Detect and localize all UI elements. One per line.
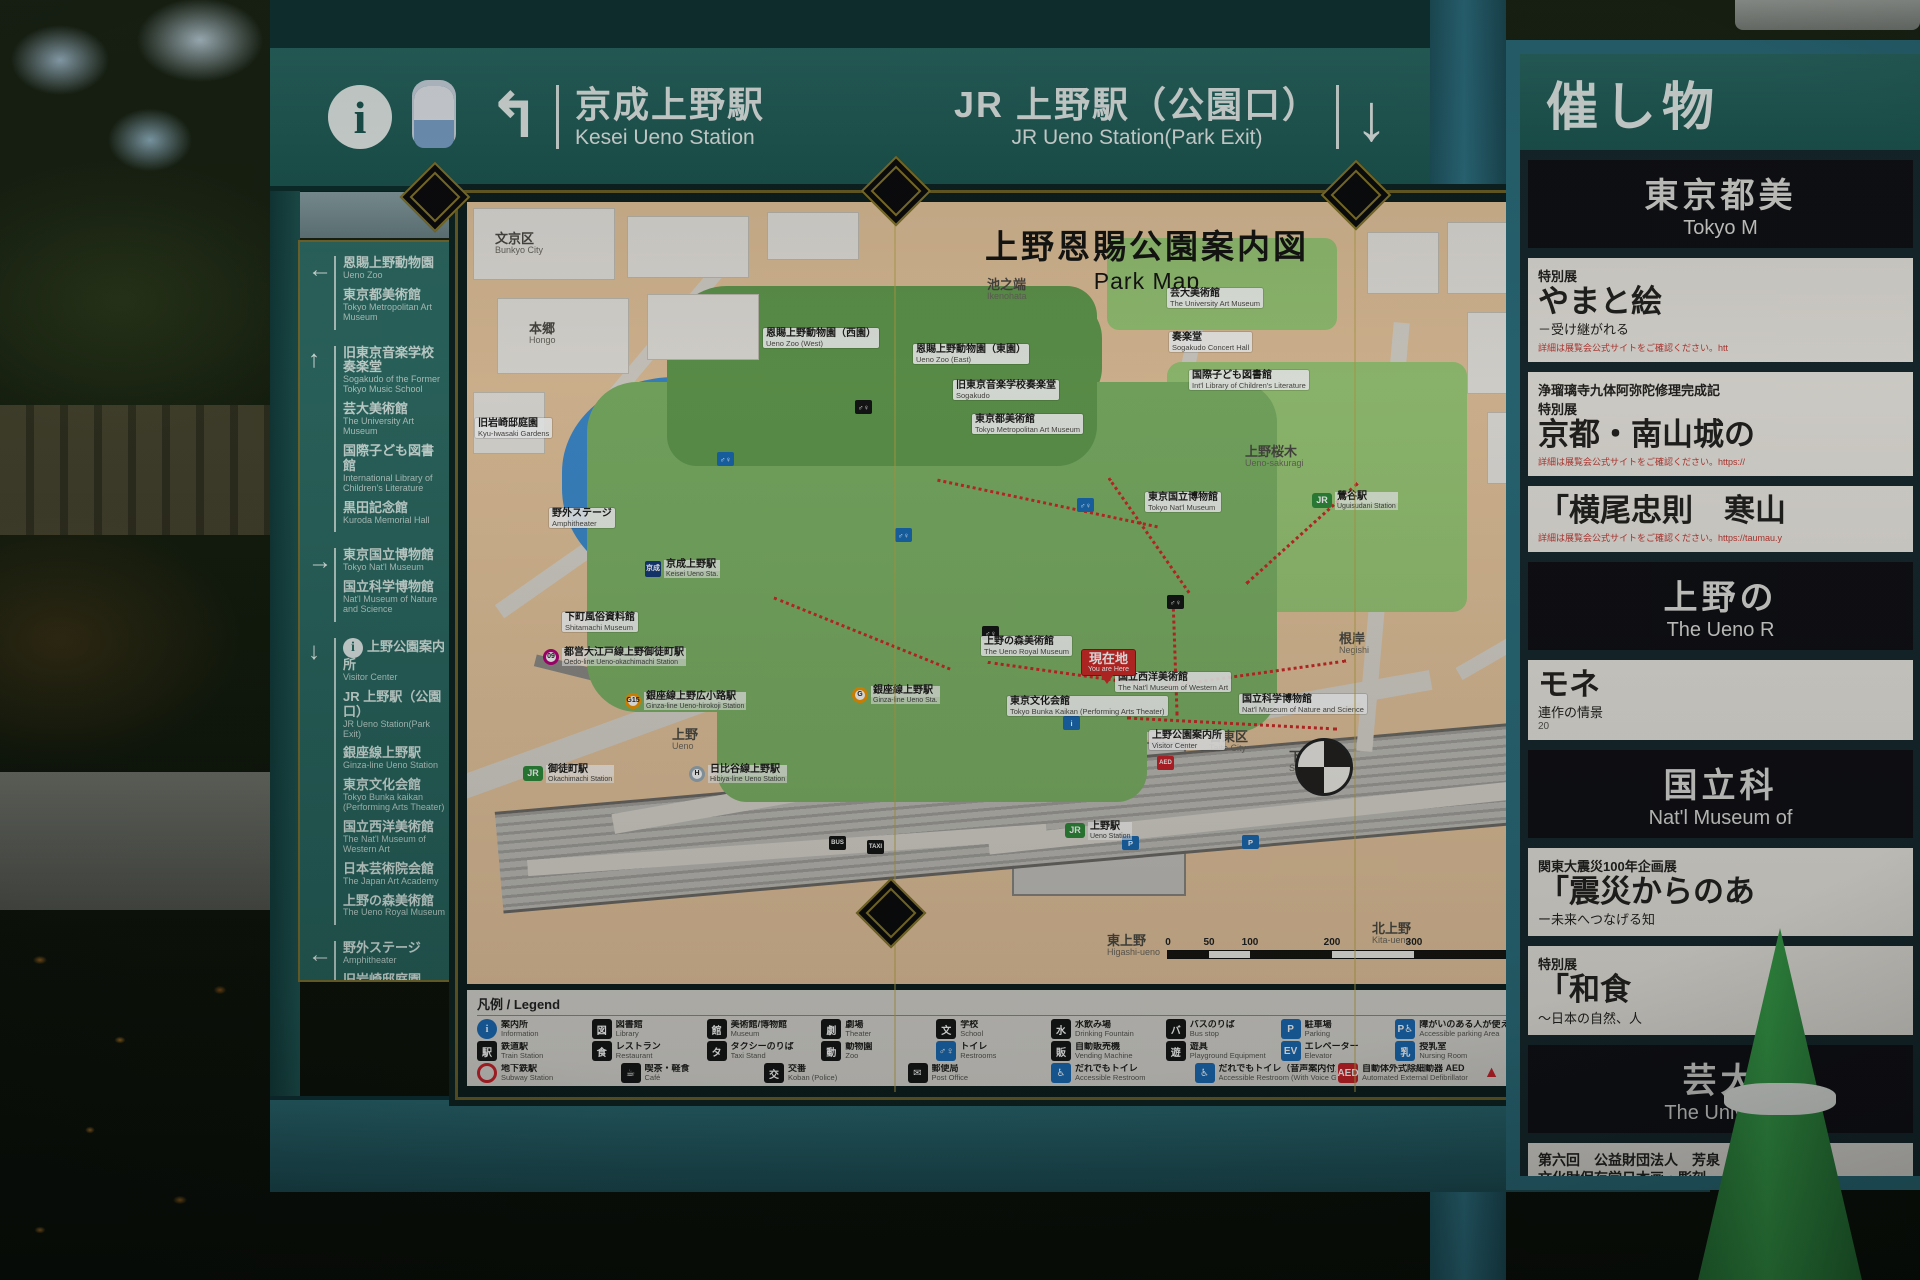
event-poster: 「横尾忠則 寒山詳細は展覧会公式サイトをご確認ください。https://taum… [1528, 486, 1913, 552]
legend-item-text: 遊具Playground Equipment [1190, 1042, 1266, 1060]
caf-icon: ☕ [621, 1063, 641, 1083]
legend-item-jp: バスのりば [1190, 1020, 1235, 1030]
sidebar-item: 旧東京音楽学校奏楽堂Sogakudo of the Former Tokyo M… [343, 346, 446, 396]
place-label-jp: 恩賜上野動物園（東園） [916, 345, 1026, 356]
legend-item: 駅鉄道駅Train Station [477, 1041, 590, 1061]
sidebar-item-jp: 国際子ども図書館 [343, 444, 446, 474]
header-right-destination: JR 上野駅（公園口） JR Ueno Station(Park Exit) [954, 84, 1320, 149]
kesei-ueno-en: Kesei Ueno Station [575, 126, 765, 150]
station-label-en: Okachimachi Station [546, 776, 614, 783]
poster-title-jp: 国立科 [1538, 758, 1903, 807]
station-label-en: Ginza-line Ueno Sta. [871, 697, 940, 704]
legend-item-jp: 学校 [960, 1020, 983, 1030]
scale-tick: 0 [1165, 937, 1171, 948]
legend-item-text: 地下鉄駅Subway Station [501, 1064, 553, 1082]
legend-item-text: エレベーターElevator [1305, 1042, 1359, 1060]
legend-item-jp: 交番 [788, 1064, 837, 1074]
poster-subtitle: ー未来へつなげる知 [1538, 909, 1903, 928]
legend-item-jp: 遊具 [1190, 1042, 1266, 1052]
sidebar-item-en: Amphitheater [343, 956, 446, 966]
station-label-en: Hibiya-line Ueno Station [708, 776, 787, 783]
legend-item-jp: トイレ [960, 1042, 996, 1052]
station-label: H日比谷線上野駅Hibiya-line Ueno Station [689, 765, 787, 783]
legend-title: 凡例 / Legend [477, 994, 1623, 1016]
school-icon: 文 [936, 1019, 956, 1039]
place-label-en: The Nat'l Museum of Western Art [1118, 684, 1228, 692]
legend-item-jp: 動物園 [845, 1042, 872, 1052]
area-label-jp: 上野 [672, 728, 698, 742]
legend-item-en: Automated External Defibrillator [1362, 1074, 1468, 1082]
scale-segment [1332, 951, 1414, 958]
legend-item-jp: レストラン [616, 1042, 661, 1052]
blk-shape [767, 212, 859, 260]
information-icon: i [328, 85, 392, 149]
place-label-en: Kyu-Iwasaki Gardens [478, 430, 549, 438]
station-label-text: 日比谷線上野駅Hibiya-line Ueno Station [708, 765, 787, 783]
poster-title-jp: やまと絵 [1538, 285, 1903, 319]
sidebar-item: 恩賜上野動物園Ueno Zoo [343, 256, 446, 281]
legend-item: ♿だれでもトイレAccessible Restroom [1051, 1063, 1193, 1083]
place-label-jp: 旧岩崎邸庭園 [478, 419, 549, 430]
place-label-jp: 旧東京音楽学校奏楽堂 [956, 381, 1056, 392]
legend-item: 動動物園Zoo [821, 1041, 934, 1061]
area-label-en: Bunkyo City [495, 246, 543, 255]
accessible-restroom-with-voice-guidance-icon: ♿ [1195, 1063, 1215, 1083]
station-label-en: Oedo-line Ueno-okachimachi Station [562, 659, 686, 666]
station-label-jp: 上野駅 [1088, 822, 1132, 833]
legend-item-text: 鉄道駅Train Station [501, 1042, 543, 1060]
sidebar-item: 野外ステージAmphitheater [343, 941, 446, 966]
photo-canvas: i ↰ 京成上野駅 Kesei Ueno Station JR 上野駅（公園口）… [0, 0, 1920, 1280]
area-label: 上野桜木Ueno-sakuragi [1245, 445, 1304, 468]
info-icon: i [343, 638, 363, 658]
park-map: 上野恩賜公園案内図 Park Map ♂♀♂♀♂♀♂♀PPBUSiAED♂♀♂♀… [467, 202, 1633, 984]
subway-station-icon [477, 1063, 497, 1083]
scale-tick: 50 [1203, 937, 1214, 948]
sidebar-item: 上野の森美術館The Ueno Royal Museum [343, 894, 446, 919]
theater-icon: 劇 [821, 1019, 841, 1039]
place-label-en: Tokyo Nat'l Museum [1148, 504, 1218, 512]
legend-item-jp: だれでもトイレ [1075, 1064, 1145, 1074]
sidebar-item: 黒田記念館Kuroda Memorial Hall [343, 501, 446, 526]
koban-police-icon: 交 [764, 1063, 784, 1083]
station-label-text: 上野駅Ueno Station [1088, 822, 1132, 840]
place-label-jp: 恩賜上野動物園（西園） [766, 329, 876, 340]
poster-tag: 特別展 [1538, 266, 1903, 285]
subway-line-badge: H [689, 766, 705, 782]
sidebar-item-jp: 恩賜上野動物園 [343, 256, 446, 271]
sidebar-item-jp: 芸大美術館 [343, 402, 446, 417]
legend-row: i案内所Information図図書館Library館美術館/博物館Museum… [477, 1019, 1623, 1039]
legend-item-text: 喫茶・軽食Café [645, 1064, 690, 1082]
sidebar-item-jp: 旧岩崎邸庭園 [343, 973, 446, 982]
legend-item: P♿障がいのある人が使える駐車場Accessible parking Area [1395, 1019, 1508, 1039]
legend-item-text: 図書館Library [616, 1020, 643, 1038]
area-label: 文京区Bunkyo City [495, 232, 543, 255]
you-are-here-en: You are Here [1088, 666, 1129, 673]
legend-item-jp: だれでもトイレ（音声案内付） [1219, 1064, 1337, 1074]
place-label-en: Int'l Library of Children's Literature [1192, 382, 1306, 390]
area-label-en: Ikenohata [987, 292, 1027, 301]
legend-item-en: Drinking Fountain [1075, 1030, 1134, 1038]
header-left-destination: 京成上野駅 Kesei Ueno Station [575, 84, 765, 149]
legend-item: i案内所Information [477, 1019, 590, 1039]
legend-item-en: Parking [1305, 1030, 1332, 1038]
blk-shape [497, 298, 629, 374]
direction-up-arrow-icon: ↑ [308, 346, 334, 533]
place-label-jp: 野外ステージ [552, 509, 612, 520]
place-label-jp: 国立西洋美術館 [1118, 673, 1228, 684]
area-label: 本郷Hongo [529, 322, 556, 345]
place-label: 東京国立博物館Tokyo Nat'l Museum [1145, 492, 1221, 512]
sidebar-group: ↓i上野公園案内所Visitor CenterJR 上野駅（公園口）JR Uen… [308, 638, 446, 925]
place-label: 東京文化会館Tokyo Bunka Kaikan (Performing Art… [1007, 696, 1168, 716]
legend-item-text: 自動体外式除細動器 AEDAutomated External Defibril… [1362, 1064, 1468, 1082]
bus-stop-icon: バ [1166, 1019, 1186, 1039]
legend-item-jp: 案内所 [501, 1020, 539, 1030]
poster-title-en: Tokyo M [1538, 217, 1903, 240]
event-poster: 特別展やまと絵－受け継がれる詳細は展覧会公式サイトをご確認ください。htt [1528, 258, 1913, 362]
scale-segment [1250, 951, 1332, 958]
scale-segment [1209, 951, 1250, 958]
place-label: 国際子ども図書館Int'l Library of Children's Lite… [1189, 370, 1309, 390]
scale-tick: 100 [1242, 937, 1259, 948]
sky-patch [0, 0, 300, 240]
legend-item-text: 交番Koban (Police) [788, 1064, 837, 1082]
poster-title-en: The Ueno R [1538, 619, 1903, 642]
kesei-ueno-jp: 京成上野駅 [575, 84, 765, 125]
place-label-en: Tokyo Bunka Kaikan (Performing Arts Thea… [1010, 708, 1165, 716]
sidebar-item: 日本芸術院会館The Japan Art Academy [343, 862, 446, 887]
legend-item-en: Post Office [932, 1074, 969, 1082]
event-poster: 浄瑠璃寺九体阿弥陀修理完成記特別展京都・南山城の詳細は展覧会公式サイトをご確認く… [1528, 372, 1913, 476]
poster-title-jp: 「震災からのあ [1538, 875, 1903, 909]
sidebar-item: 東京都美術館Tokyo Metropolitan Art Museum [343, 288, 446, 323]
legend-item-jp: 自動販売機 [1075, 1042, 1133, 1052]
place-label-en: Ueno Zoo (East) [916, 356, 1026, 364]
elevator-icon: EV [1281, 1041, 1301, 1061]
poster-tag: 浄瑠璃寺九体阿弥陀修理完成記 [1538, 380, 1903, 399]
direction-right-arrow-icon: → [308, 548, 334, 622]
legend-item-en: Library [616, 1030, 643, 1038]
place-label: 上野の森美術館The Ueno Royal Museum [981, 636, 1072, 656]
station-label-jp: 銀座線上野広小路駅 [644, 692, 746, 703]
sidebar-item-en: Tokyo Metropolitan Art Museum [343, 303, 446, 323]
legend-row: 地下鉄駅Subway Station☕喫茶・軽食Café交交番Koban (Po… [477, 1063, 1623, 1083]
subway-line-badge: G15 [625, 693, 641, 709]
sidebar-group: ←野外ステージAmphitheater旧岩崎邸庭園Kyu-Iwasaki-tei… [308, 941, 446, 982]
restrooms-icon: ♂♀ [936, 1041, 956, 1061]
sidebar-item-en: The University Art Museum [343, 417, 446, 437]
wc-map-icon: ♂♀ [717, 452, 734, 466]
jr-ueno-en: JR Ueno Station(Park Exit) [954, 126, 1320, 150]
down-arrow-icon: ↓ [1355, 84, 1388, 150]
legend-item-text: レストランRestaurant [616, 1042, 661, 1060]
metal-bracket [1735, 0, 1920, 30]
legend-item-text: 授乳室Nursing Room [1419, 1042, 1467, 1060]
station-label-en: Ginza-line Ueno-hirokoji Station [644, 703, 746, 710]
legend-item-jp: 劇場 [845, 1020, 871, 1030]
legend-item-text: バスのりばBus stop [1190, 1020, 1235, 1038]
legend-item: 地下鉄駅Subway Station [477, 1063, 619, 1083]
compass-icon [1295, 738, 1353, 796]
place-label: 旧岩崎邸庭園Kyu-Iwasaki Gardens [475, 418, 552, 438]
sidebar-item-jp: 東京都美術館 [343, 288, 446, 303]
place-label: 上野公園案内所Visitor Center [1149, 730, 1225, 750]
place-label-en: Ueno Zoo (West) [766, 340, 876, 348]
legend-item-en: Restrooms [960, 1052, 996, 1060]
place-label-en: Sogakudo [956, 392, 1056, 400]
place-label-en: Sogakudo Concert Hall [1172, 344, 1249, 352]
legend-item: ♂♀トイレRestrooms [936, 1041, 1049, 1061]
legend-item: 交交番Koban (Police) [764, 1063, 906, 1083]
map-title-jp: 上野恩賜公園案内図 [937, 220, 1357, 268]
station-label-jp: 都営大江戸線上野御徒町駅 [562, 648, 686, 659]
zoo-icon: 動 [821, 1041, 841, 1061]
legend-item-text: 学校School [960, 1020, 983, 1038]
legend-item-en: Theater [845, 1030, 871, 1038]
legend-item: ババスのりばBus stop [1166, 1019, 1279, 1039]
legend-item-en: Taxi Stand [731, 1052, 794, 1060]
accessible-parking-area-icon: P♿ [1395, 1019, 1415, 1039]
place-label-jp: 国立科学博物館 [1242, 695, 1364, 706]
legend-item-en: Bus stop [1190, 1030, 1235, 1038]
jr-line-badge: JR [1065, 823, 1085, 838]
sidebar-item-jp: 東京国立博物館 [343, 548, 446, 563]
legend-item: 遊遊具Playground Equipment [1166, 1041, 1279, 1061]
place-label: 恩賜上野動物園（東園）Ueno Zoo (East) [913, 344, 1029, 364]
sidebar-item-jp: 銀座線上野駅 [343, 746, 446, 761]
legend-item: P駐車場Parking [1281, 1019, 1394, 1039]
area-label-jp: 北上野 [1372, 922, 1411, 936]
legend-item: 文学校School [936, 1019, 1049, 1039]
event-poster: 関東大震災100年企画展「震災からのあー未来へつなげる知 [1528, 848, 1913, 936]
sidebar-item-jp: 上野の森美術館 [343, 894, 446, 909]
area-label-jp: 文京区 [495, 232, 543, 246]
legend-item: ☕喫茶・軽食Café [621, 1063, 763, 1083]
place-label-jp: 国際子ども図書館 [1192, 371, 1306, 382]
place-label: 旧東京音楽学校奏楽堂Sogakudo [953, 380, 1059, 400]
legend-item-text: だれでもトイレ（音声案内付）Accessible Restroom (With … [1219, 1064, 1337, 1082]
jr-line-badge: JR [1312, 493, 1332, 508]
place-label-jp: 東京都美術館 [975, 415, 1080, 426]
turn-left-arrow-icon: ↰ [488, 86, 540, 148]
legend-item-en: Accessible Restroom (With Voice Guidance… [1219, 1074, 1337, 1082]
legend-item-text: 動物園Zoo [845, 1042, 872, 1060]
sidebar-item-en: The Ueno Royal Museum [343, 908, 446, 918]
direction-header: i ↰ 京成上野駅 Kesei Ueno Station JR 上野駅（公園口）… [270, 48, 1430, 191]
poster-url-note: 詳細は展覧会公式サイトをご確認ください。htt [1538, 341, 1903, 354]
place-label: 国立科学博物館Nat'l Museum of Nature and Scienc… [1239, 694, 1367, 714]
subway-line-badge: 京成 [645, 561, 661, 577]
bus-map-icon: BUS [829, 836, 846, 850]
station-label-text: 京成上野駅Keisei Ueno Sta. [664, 560, 720, 578]
place-label-en: Visitor Center [1152, 742, 1222, 750]
legend-item: 劇劇場Theater [821, 1019, 934, 1039]
sidebar-item-en: The Nat'l Museum of Western Art [343, 835, 446, 855]
poster-title-en: Nat'l Museum of [1538, 807, 1903, 830]
sidebar-item-en: Tokyo Bunka kaikan (Performing Arts Thea… [343, 793, 446, 813]
place-label: 国立西洋美術館The Nat'l Museum of Western Art [1115, 672, 1231, 692]
sidebar-item: 旧岩崎邸庭園Kyu-Iwasaki-tei Gardens [343, 973, 446, 982]
wcb-map-icon: ♂♀ [855, 400, 872, 414]
poster-title-jp: 上野の [1538, 570, 1903, 619]
legend-item-jp: 美術館/博物館 [731, 1020, 788, 1030]
sidebar-item-en: Kuroda Memorial Hall [343, 516, 446, 526]
sidebar-item-jp: 国立科学博物館 [343, 580, 446, 595]
poster-side-note: 20 [1538, 721, 1903, 732]
you-are-here-pointer [1100, 674, 1114, 684]
place-label-jp: 下町風俗資料館 [565, 613, 635, 624]
vending-machine-icon: 販 [1051, 1041, 1071, 1061]
sidebar-item-en: International Library of Children's Lite… [343, 474, 446, 494]
information-icon: i [477, 1019, 497, 1039]
header-divider [556, 85, 559, 149]
train-station-icon: 駅 [477, 1041, 497, 1061]
area-label-jp: 池之端 [987, 278, 1027, 292]
legend-item-jp: 障がいのある人が使える駐車場 [1419, 1020, 1508, 1030]
taxi-map-icon: TAXI [867, 840, 884, 854]
place-label-en: Tokyo Metropolitan Art Museum [975, 426, 1080, 434]
traffic-cone [1652, 928, 1908, 1280]
area-label: 池之端Ikenohata [987, 278, 1027, 301]
sidebar-items: 旧東京音楽学校奏楽堂Sogakudo of the Former Tokyo M… [334, 346, 446, 533]
sidebar-item-jp: 野外ステージ [343, 941, 446, 956]
place-label: 芸大美術館The University Art Museum [1167, 288, 1263, 308]
legend-item-jp: 図書館 [616, 1020, 643, 1030]
place-label-en: Nat'l Museum of Nature and Science [1242, 706, 1364, 714]
sidebar-item-en: Sogakudo of the Former Tokyo Music Schoo… [343, 375, 446, 395]
sidebar-item-en: Tokyo Nat'l Museum [343, 563, 446, 573]
you-are-here-jp: 現在地 [1088, 652, 1129, 666]
legend-item-en: Café [645, 1074, 690, 1082]
header-divider [1336, 85, 1339, 149]
accessible-restroom-icon: ♿ [1051, 1063, 1071, 1083]
sign-left-post [270, 186, 300, 1186]
area-label-en: Higashi-ueno [1107, 948, 1160, 957]
legend-item-text: だれでもトイレAccessible Restroom [1075, 1064, 1145, 1082]
drinking-fountain-icon: 水 [1051, 1019, 1071, 1039]
station-label-jp: 日比谷線上野駅 [708, 765, 787, 776]
legend-item: ✉郵便局Post Office [908, 1063, 1050, 1083]
blk-shape [627, 216, 749, 278]
station-label: JR御徒町駅Okachimachi Station [523, 765, 614, 783]
sidebar-group: ←恩賜上野動物園Ueno Zoo東京都美術館Tokyo Metropolitan… [308, 256, 446, 330]
sidebar-items: 野外ステージAmphitheater旧岩崎邸庭園Kyu-Iwasaki-tei … [334, 941, 446, 982]
sidebar-item: JR 上野駅（公園口）JR Ueno Station(Park Exit) [343, 690, 446, 740]
station-label-text: 鶯谷駅Uguisudani Station [1335, 492, 1398, 510]
scale-tick: 300 [1406, 937, 1423, 948]
area-label-en: Ueno-sakuragi [1245, 459, 1304, 468]
legend-item: タタクシーのりばTaxi Stand [707, 1041, 820, 1061]
legend-item-text: 自動販売機Vending Machine [1075, 1042, 1133, 1060]
sidebar-item-jp: 旧東京音楽学校奏楽堂 [343, 346, 446, 376]
place-label-jp: 奏楽堂 [1172, 333, 1249, 344]
legend-item-jp: 郵便局 [932, 1064, 969, 1074]
sidebar-item: 芸大美術館The University Art Museum [343, 402, 446, 437]
wc-map-icon: ♂♀ [895, 528, 912, 542]
scale-segment [1168, 951, 1209, 958]
event-poster: 上野のThe Ueno R [1528, 562, 1913, 650]
place-label-en: The University Art Museum [1170, 300, 1260, 308]
legend-item-en: Restaurant [616, 1052, 661, 1060]
legend-item-en: Elevator [1305, 1052, 1359, 1060]
place-label: 下町風俗資料館Shitamachi Museum [562, 612, 638, 632]
info-map-icon: i [1063, 716, 1080, 730]
sidebar-item-en: Ueno Zoo [343, 271, 446, 281]
glass-mullion [894, 192, 896, 1092]
events-panel-title: 催し物 [1520, 54, 1920, 150]
sidebar-item: 東京文化会館Tokyo Bunka kaikan (Performing Art… [343, 778, 446, 813]
wooden-fence [0, 405, 272, 535]
area-label: 上野Ueno [672, 728, 698, 751]
legend-item-jp: 鉄道駅 [501, 1042, 543, 1052]
place-label-jp: 芸大美術館 [1170, 289, 1260, 300]
nursing-room-icon: 乳 [1395, 1041, 1415, 1061]
legend-item-en: Subway Station [501, 1074, 553, 1082]
legend-row: 駅鉄道駅Train Station食レストランRestaurantタタクシーのり… [477, 1041, 1623, 1061]
post-office-icon: ✉ [908, 1063, 928, 1083]
sidebar-item-en: Ginza-line Ueno Station [343, 761, 446, 771]
place-label: 奏楽堂Sogakudo Concert Hall [1169, 332, 1252, 352]
subway-line-badge: 09 [543, 649, 559, 665]
station-label: JR上野駅Ueno Station [1065, 822, 1132, 840]
concrete-base [0, 772, 286, 910]
place-label: 恩賜上野動物園（西園）Ueno Zoo (West) [763, 328, 879, 348]
place-label: 野外ステージAmphitheater [549, 508, 615, 528]
sidebar-item: 銀座線上野駅Ginza-line Ueno Station [343, 746, 446, 771]
poster-tag: 関東大震災100年企画展 [1538, 856, 1903, 875]
legend-item: 食レストランRestaurant [592, 1041, 705, 1061]
poster-url-note: 詳細は展覧会公式サイトをご確認ください。https:// [1538, 455, 1903, 468]
area-label-jp: 上野桜木 [1245, 445, 1304, 459]
legend-item: 販自動販売機Vending Machine [1051, 1041, 1164, 1061]
legend-item-jp: 駐車場 [1305, 1020, 1332, 1030]
legend-item-text: 案内所Information [501, 1020, 539, 1038]
legend-item: 水水飲み場Drinking Fountain [1051, 1019, 1164, 1039]
legend-item-jp: 授乳室 [1419, 1042, 1467, 1052]
station-label-text: 都営大江戸線上野御徒町駅Oedo-line Ueno-okachimachi S… [562, 648, 686, 666]
poster-url-note: 詳細は展覧会公式サイトをご確認ください。https://taumau.y [1538, 531, 1903, 544]
sidebar-item-jp: JR 上野駅（公園口） [343, 690, 446, 720]
station-label-en: Ueno Station [1088, 833, 1132, 840]
station-label-text: 銀座線上野駅Ginza-line Ueno Sta. [871, 686, 940, 704]
legend-item-text: タクシーのりばTaxi Stand [731, 1042, 794, 1060]
sidebar-item-en: JR Ueno Station(Park Exit) [343, 720, 446, 740]
legend-item-en: Playground Equipment [1190, 1052, 1266, 1060]
sidebar-items: i上野公園案内所Visitor CenterJR 上野駅（公園口）JR Ueno… [334, 638, 446, 925]
poster-tag: 特別展 [1538, 399, 1903, 418]
blk-shape [647, 294, 759, 360]
station-label: 京成京成上野駅Keisei Ueno Sta. [645, 560, 720, 578]
sign-bottom-rail [270, 1096, 1710, 1192]
you-are-here-marker: 現在地You are Here [1082, 650, 1135, 675]
sidebar-item-en: The Japan Art Academy [343, 877, 446, 887]
parking-icon: P [1281, 1019, 1301, 1039]
sidebar-group: →東京国立博物館Tokyo Nat'l Museum国立科学博物館Nat'l M… [308, 548, 446, 622]
blk-shape [1367, 232, 1439, 294]
legend-item-en: Accessible parking Area [1419, 1030, 1508, 1038]
area-label-jp: 東上野 [1107, 934, 1160, 948]
sidebar-item-en: Nat'l Museum of Nature and Science [343, 595, 446, 615]
place-label-jp: 上野の森美術館 [984, 637, 1069, 648]
legend-item-en: Museum [731, 1030, 788, 1038]
direction-left-arrow-icon: ← [308, 256, 334, 330]
legend-item-jp: 喫茶・軽食 [645, 1064, 690, 1074]
place-label-jp: 東京文化会館 [1010, 697, 1165, 708]
legend-item-en: Zoo [845, 1052, 872, 1060]
sign-top-beam [270, 0, 1505, 48]
